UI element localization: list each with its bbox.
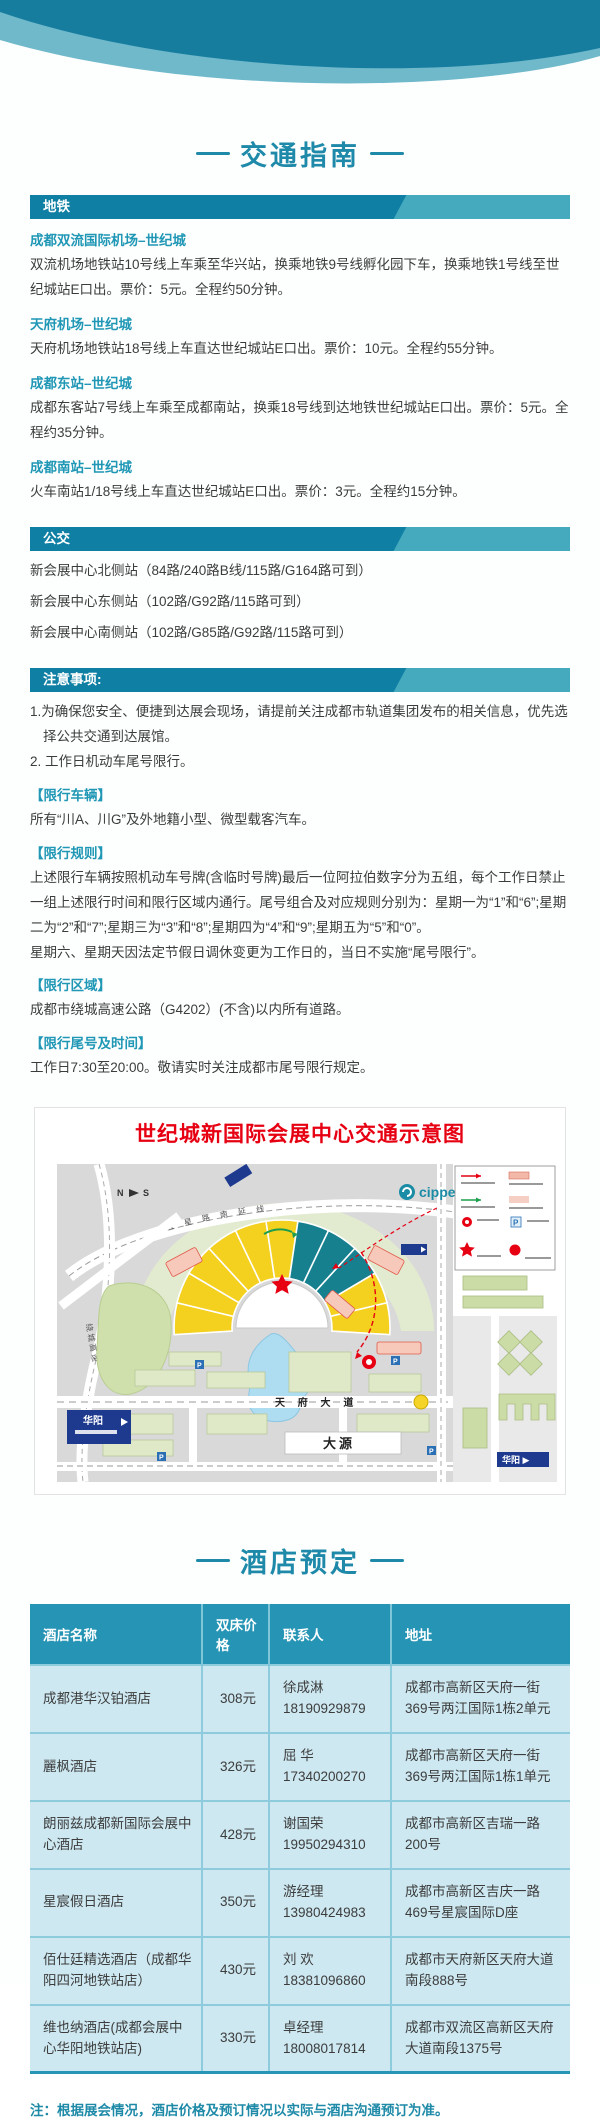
title-dash-left [196, 1559, 230, 1562]
svg-text:大源: 大源 [323, 1436, 355, 1451]
restriction-time-text: 工作日7:30至20:00。敬请实时关注成都市尾号限行规定。 [30, 1056, 570, 1081]
restriction-area-label: 【限行区域】 [30, 974, 570, 994]
title-dash-right [370, 152, 404, 155]
hotel-name: 成都港华汉铂酒店 [30, 1665, 202, 1733]
direction-sign-huayang-left: 华阳 [67, 1410, 131, 1444]
page-title-text: 交通指南 [240, 134, 360, 173]
metro-section-content: 成都双流国际机场–世纪城 双流机场地铁站10号线上车乘至华兴站，换乘地铁9号线孵… [30, 229, 570, 505]
notice-section-label: 注意事项: [30, 668, 570, 692]
metro-route-title: 成都东站–世纪城 [30, 372, 570, 392]
hotel-phone: 18008017814 [283, 2039, 382, 2060]
title-dash-right [370, 1559, 404, 1562]
hotel-phone: 13980424983 [283, 1903, 382, 1924]
metro-route-desc: 天府机场地铁站18号线上车直达世纪城站E口出。票价：10元。全程约55分钟。 [30, 337, 570, 362]
map-title: 世纪城新国际会展中心交通示意图 [39, 1118, 561, 1148]
hotel-contact: 徐成淋18190929879 [269, 1665, 391, 1733]
svg-text:N: N [117, 1188, 124, 1198]
map-legend: P [455, 1166, 555, 1270]
restriction-time-label: 【限行尾号及时间】 [30, 1032, 570, 1052]
restriction-vehicles-label: 【限行车辆】 [30, 784, 570, 804]
restriction-rules-label: 【限行规则】 [30, 842, 570, 862]
hotel-name: 麗枫酒店 [30, 1733, 202, 1801]
svg-text:P: P [159, 1455, 164, 1462]
restriction-rules-text2: 星期六、星期天因法定节假日调休变更为工作日的，当日不实施“尾号限行”。 [30, 941, 570, 966]
hotel-booking-note: 注：根据展会情况，酒店价格及预订情况以实际与酒店沟通预订为准。 [30, 2100, 570, 2122]
hotel-price: 326元 [202, 1733, 269, 1801]
notice-item: 2. 工作日机动车尾号限行。 [30, 750, 570, 775]
direction-sign-huayang-right: 华阳 ▶ [497, 1452, 549, 1467]
metro-section-label: 地铁 [30, 195, 570, 219]
hotel-address: 成都市双流区高新区天府大道南段1375号 [391, 2005, 570, 2073]
col-header-price: 双床价格 [202, 1604, 269, 1665]
hotel-contact: 游经理13980424983 [269, 1869, 391, 1937]
svg-text:华阳 ▶: 华阳 ▶ [502, 1454, 530, 1465]
hotel-price: 350元 [202, 1869, 269, 1937]
dayuan-area-label: 大源 [285, 1432, 401, 1454]
bus-line: 新会展中心东侧站（102路/G92路/115路可到） [30, 590, 570, 615]
table-row: 佰仕廷精选酒店（成都华阳四河地铁站店） 430元 刘 欢18381096860 … [30, 1937, 570, 2005]
hotel-booking-title: 酒店预定 [0, 1541, 600, 1580]
hotel-price: 430元 [202, 1937, 269, 2005]
svg-text:P: P [429, 1449, 434, 1456]
hotel-price: 428元 [202, 1801, 269, 1869]
hotel-phone: 19950294310 [283, 1835, 382, 1856]
title-dash-left [196, 152, 230, 155]
col-header-contact: 联系人 [269, 1604, 391, 1665]
metro-route-desc: 成都东客站7号线上车乘至成都南站，换乘18号线到达地铁世纪城站E口出。票价：5元… [30, 396, 570, 446]
restriction-area-text: 成都市绕城高速公路（G4202）(不含)以内所有道路。 [30, 998, 570, 1023]
table-row: 成都港华汉铂酒店 308元 徐成淋18190929879 成都市高新区天府一街3… [30, 1665, 570, 1733]
hotel-address: 成都市高新区吉瑞一路200号 [391, 1801, 570, 1869]
svg-text:天 府 大 道: 天 府 大 道 [275, 1396, 358, 1409]
metro-route-desc: 火车南站1/18号线上车直达世纪城站E口出。票价：3元。全程约15分钟。 [30, 480, 570, 505]
hotel-contact: 刘 欢18381096860 [269, 1937, 391, 2005]
hotel-contact: 屈 华17340200270 [269, 1733, 391, 1801]
bus-section-content: 新会展中心北侧站（84路/240路B线/115路/G164路可到） 新会展中心东… [30, 559, 570, 646]
hotel-name: 朗丽兹成都新国际会展中心酒店 [30, 1801, 202, 1869]
hotel-address: 成都市高新区吉庆一路469号星宸国际D座 [391, 1869, 570, 1937]
restriction-vehicles-text: 所有“川A、川G”及外地籍小型、微型载客汽车。 [30, 808, 570, 833]
bus-section-label: 公交 [30, 527, 570, 551]
metro-section-header: 地铁 [30, 195, 570, 219]
restriction-rules-text: 上述限行车辆按照机动车号牌(含临时号牌)最后一位阿拉伯数字分为五组，每个工作日禁… [30, 866, 570, 941]
traffic-guide-title: 交通指南 [0, 134, 600, 173]
svg-text:P: P [393, 1359, 398, 1366]
hotel-name: 佰仕廷精选酒店（成都华阳四河地铁站店） [30, 1937, 202, 2005]
hotel-contact: 卓经理18008017814 [269, 2005, 391, 2073]
hotel-phone: 17340200270 [283, 1767, 382, 1788]
hotel-phone: 18381096860 [283, 1971, 382, 1992]
hotel-price: 330元 [202, 2005, 269, 2073]
bus-line: 新会展中心北侧站（84路/240路B线/115路/G164路可到） [30, 559, 570, 584]
hotel-name: 星宸假日酒店 [30, 1869, 202, 1937]
table-row: 维也纳酒店(成都会展中心华阳地铁站店) 330元 卓经理18008017814 … [30, 2005, 570, 2073]
metro-route-desc: 双流机场地铁站10号线上车乘至华兴站，换乘地铁9号线孵化园下车，换乘地铁1号线至… [30, 253, 570, 303]
col-header-address: 地址 [391, 1604, 570, 1665]
metro-route-title: 成都南站–世纪城 [30, 456, 570, 476]
notice-section-content: 1.为确保您安全、便捷到达展会现场，请提前关注成都市轨道集团发布的相关信息，优先… [30, 700, 570, 1082]
table-row: 星宸假日酒店 350元 游经理13980424983 成都市高新区吉庆一路469… [30, 1869, 570, 1937]
svg-text:P: P [513, 1219, 519, 1228]
hotel-address: 成都市天府新区天府大道南段888号 [391, 1937, 570, 2005]
bus-section-header: 公交 [30, 527, 570, 551]
hotel-table-header-row: 酒店名称 双床价格 联系人 地址 [30, 1604, 570, 1665]
hotel-address: 成都市高新区天府一街369号两江国际1栋1单元 [391, 1733, 570, 1801]
svg-text:华阳: 华阳 [83, 1414, 103, 1427]
notice-item: 1.为确保您安全、便捷到达展会现场，请提前关注成都市轨道集团发布的相关信息，优先… [30, 700, 570, 750]
hotel-phone: 18190929879 [283, 1699, 382, 1720]
hotel-contact: 谢国荣19950294310 [269, 1801, 391, 1869]
traffic-map-image: 红 星 路 南 延 线 绕 城 高 速 N S [39, 1156, 561, 1488]
notice-section-header: 注意事项: [30, 668, 570, 692]
traffic-map-card: 世纪城新国际会展中心交通示意图 红 星 路 南 延 线 绕 城 高 速 N S [34, 1107, 566, 1495]
svg-text:P: P [197, 1363, 202, 1370]
metro-route-title: 成都双流国际机场–世纪城 [30, 229, 570, 249]
hotel-address: 成都市高新区天府一街369号两江国际1栋2单元 [391, 1665, 570, 1733]
hotel-price: 308元 [202, 1665, 269, 1733]
svg-text:cippe: cippe [419, 1184, 456, 1200]
header-swoosh-banner [0, 0, 600, 92]
svg-text:S: S [143, 1188, 149, 1198]
hotel-table: 酒店名称 双床价格 联系人 地址 成都港华汉铂酒店 308元 徐成淋181909… [30, 1604, 570, 2074]
hotel-title-text: 酒店预定 [240, 1541, 360, 1580]
bus-line: 新会展中心南侧站（102路/G85路/G92路/115路可到） [30, 621, 570, 646]
table-row: 朗丽兹成都新国际会展中心酒店 428元 谢国荣19950294310 成都市高新… [30, 1801, 570, 1869]
metro-route-title: 天府机场–世纪城 [30, 313, 570, 333]
col-header-hotel-name: 酒店名称 [30, 1604, 202, 1665]
hotel-name: 维也纳酒店(成都会展中心华阳地铁站店) [30, 2005, 202, 2073]
table-row: 麗枫酒店 326元 屈 华17340200270 成都市高新区天府一街369号两… [30, 1733, 570, 1801]
